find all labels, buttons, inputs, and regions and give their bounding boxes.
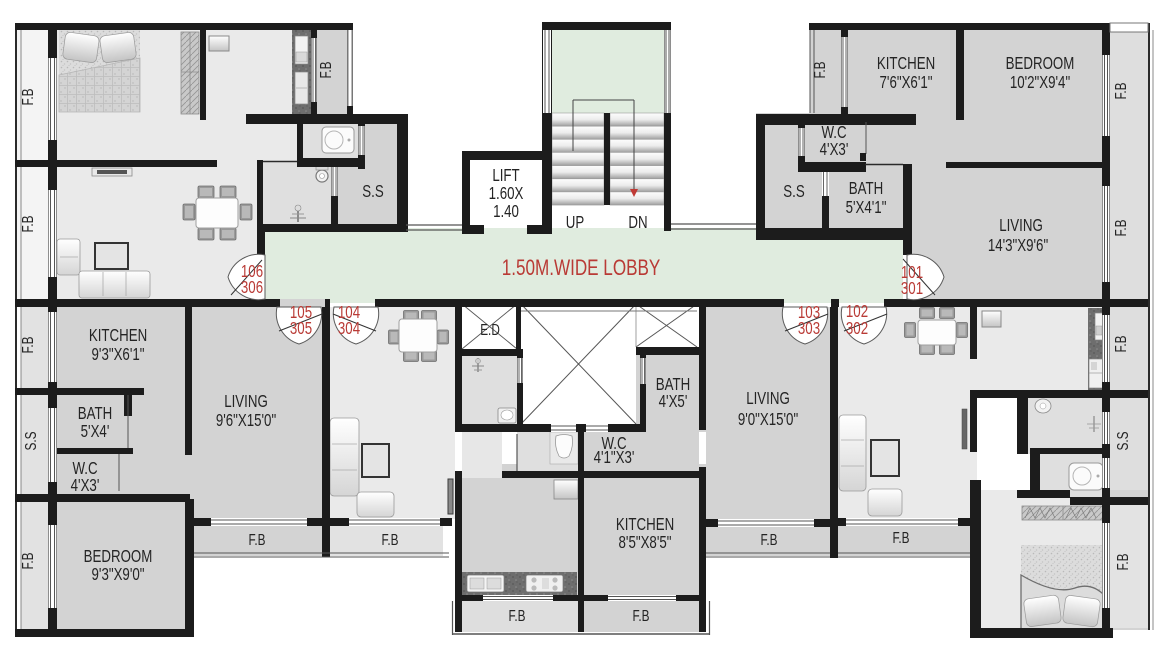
svg-text:UP: UP bbox=[566, 213, 584, 232]
svg-text:7'6"X6'1": 7'6"X6'1" bbox=[880, 73, 933, 92]
svg-text:F.B: F.B bbox=[1114, 553, 1131, 570]
svg-text:F.B: F.B bbox=[19, 88, 36, 105]
svg-text:F.B: F.B bbox=[1112, 335, 1129, 352]
svg-text:BEDROOM: BEDROOM bbox=[1006, 54, 1075, 73]
svg-text:4'X3': 4'X3' bbox=[820, 140, 849, 159]
svg-text:10'2"X9'4": 10'2"X9'4" bbox=[1010, 73, 1070, 92]
svg-text:E.D: E.D bbox=[480, 321, 500, 338]
svg-text:BEDROOM: BEDROOM bbox=[84, 547, 153, 566]
svg-text:4'X3': 4'X3' bbox=[71, 476, 100, 495]
svg-text:LIFT: LIFT bbox=[492, 166, 520, 185]
svg-text:4'X5': 4'X5' bbox=[659, 392, 688, 411]
svg-text:S.S: S.S bbox=[22, 432, 39, 451]
svg-text:F.B: F.B bbox=[19, 336, 36, 353]
svg-text:4'1"X3': 4'1"X3' bbox=[594, 448, 635, 467]
svg-text:14'3"X9'6": 14'3"X9'6" bbox=[988, 236, 1048, 255]
svg-text:S.S: S.S bbox=[362, 182, 383, 201]
svg-text:F.B: F.B bbox=[317, 61, 334, 78]
svg-text:DN: DN bbox=[628, 213, 647, 232]
svg-text:F.B: F.B bbox=[892, 529, 909, 546]
svg-text:S.S: S.S bbox=[1114, 432, 1131, 451]
svg-text:9'3"X6'1": 9'3"X6'1" bbox=[92, 345, 145, 364]
svg-text:1.50M.WIDE LOBBY: 1.50M.WIDE LOBBY bbox=[502, 256, 661, 281]
svg-text:LIVING: LIVING bbox=[224, 392, 268, 411]
svg-text:KITCHEN: KITCHEN bbox=[877, 54, 935, 73]
svg-text:301: 301 bbox=[901, 279, 923, 298]
svg-text:F.B: F.B bbox=[508, 607, 525, 624]
svg-text:302: 302 bbox=[846, 319, 868, 338]
svg-text:F.B: F.B bbox=[811, 61, 828, 78]
svg-text:304: 304 bbox=[338, 319, 360, 338]
svg-text:303: 303 bbox=[798, 319, 820, 338]
svg-text:BATH: BATH bbox=[78, 404, 112, 423]
svg-text:LIVING: LIVING bbox=[746, 389, 790, 408]
svg-text:KITCHEN: KITCHEN bbox=[89, 326, 147, 345]
svg-text:F.B: F.B bbox=[19, 215, 36, 232]
svg-text:9'3"X9'0": 9'3"X9'0" bbox=[92, 565, 145, 584]
svg-text:F.B: F.B bbox=[381, 531, 398, 548]
svg-text:F.B: F.B bbox=[1112, 82, 1129, 99]
svg-text:F.B: F.B bbox=[632, 607, 649, 624]
svg-text:F.B: F.B bbox=[760, 531, 777, 548]
svg-text:5'X4': 5'X4' bbox=[81, 422, 110, 441]
svg-text:9'6"X15'0": 9'6"X15'0" bbox=[216, 411, 276, 430]
svg-text:306: 306 bbox=[241, 278, 263, 297]
svg-text:5'X4'1": 5'X4'1" bbox=[846, 198, 887, 217]
svg-text:1.60X: 1.60X bbox=[489, 184, 524, 203]
svg-text:LIVING: LIVING bbox=[999, 216, 1043, 235]
svg-text:305: 305 bbox=[290, 319, 312, 338]
svg-text:S.S: S.S bbox=[783, 182, 804, 201]
svg-text:8'5"X8'5": 8'5"X8'5" bbox=[619, 533, 672, 552]
svg-text:9'0"X15'0": 9'0"X15'0" bbox=[738, 410, 798, 429]
svg-text:F.B: F.B bbox=[19, 552, 36, 569]
svg-text:1.40: 1.40 bbox=[493, 202, 519, 221]
svg-text:F.B: F.B bbox=[248, 531, 265, 548]
svg-text:KITCHEN: KITCHEN bbox=[616, 515, 674, 534]
svg-text:F.B: F.B bbox=[1112, 219, 1129, 236]
svg-text:BATH: BATH bbox=[849, 179, 883, 198]
